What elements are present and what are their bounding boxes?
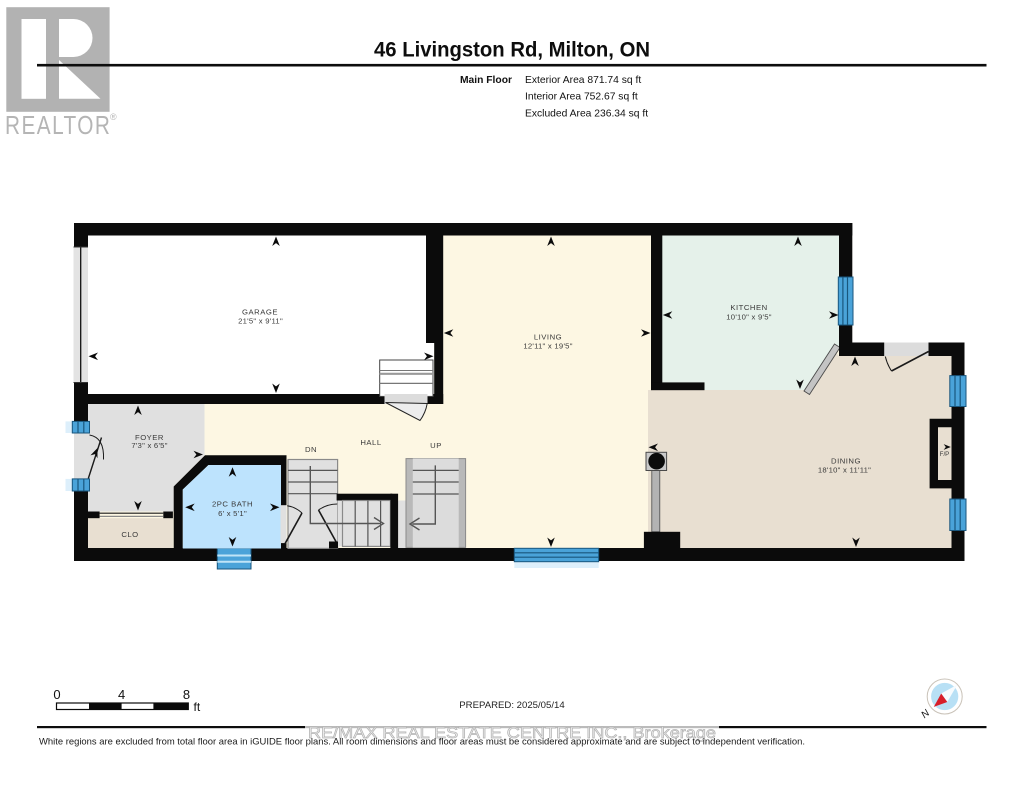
- svg-text:PREPARED: 2025/05/14: PREPARED: 2025/05/14: [459, 700, 565, 711]
- svg-text:Excluded Area 236.34 sq ft: Excluded Area 236.34 sq ft: [525, 108, 648, 119]
- svg-text:10'10" x 9'5": 10'10" x 9'5": [726, 312, 771, 321]
- svg-text:CLO: CLO: [121, 530, 138, 539]
- svg-text:F/P: F/P: [940, 451, 950, 458]
- svg-text:HALL: HALL: [360, 438, 381, 447]
- svg-text:Interior Area 752.67 sq ft: Interior Area 752.67 sq ft: [525, 92, 638, 103]
- svg-text:KITCHEN: KITCHEN: [730, 303, 767, 312]
- svg-text:DINING: DINING: [831, 457, 861, 466]
- svg-text:46 Livingston Rd, Milton, ON: 46 Livingston Rd, Milton, ON: [374, 38, 650, 62]
- svg-text:7'3" x 6'5": 7'3" x 6'5": [131, 441, 167, 450]
- svg-text:Main Floor: Main Floor: [460, 75, 512, 86]
- svg-text:18'10" x 11'11": 18'10" x 11'11": [818, 465, 871, 474]
- svg-text:8: 8: [183, 687, 190, 702]
- svg-text:12'11" x 19'5": 12'11" x 19'5": [523, 342, 572, 351]
- svg-text:2PC BATH: 2PC BATH: [212, 500, 253, 509]
- svg-text:21'5" x 9'11": 21'5" x 9'11": [238, 317, 283, 326]
- svg-text:GARAGE: GARAGE: [242, 308, 278, 317]
- svg-text:Exterior Area 871.74 sq ft: Exterior Area 871.74 sq ft: [525, 75, 641, 86]
- svg-text:LIVING: LIVING: [534, 332, 562, 341]
- svg-text:6' x 5'1": 6' x 5'1": [218, 509, 247, 518]
- svg-text:ft: ft: [194, 700, 201, 714]
- svg-text:DN: DN: [305, 445, 317, 454]
- svg-text:4: 4: [118, 687, 125, 702]
- svg-text:White regions are excluded fro: White regions are excluded from total fl…: [39, 736, 805, 747]
- svg-text:0: 0: [53, 687, 60, 702]
- svg-text:®: ®: [110, 112, 117, 122]
- svg-text:REALTOR: REALTOR: [5, 111, 111, 140]
- svg-text:UP: UP: [430, 441, 442, 450]
